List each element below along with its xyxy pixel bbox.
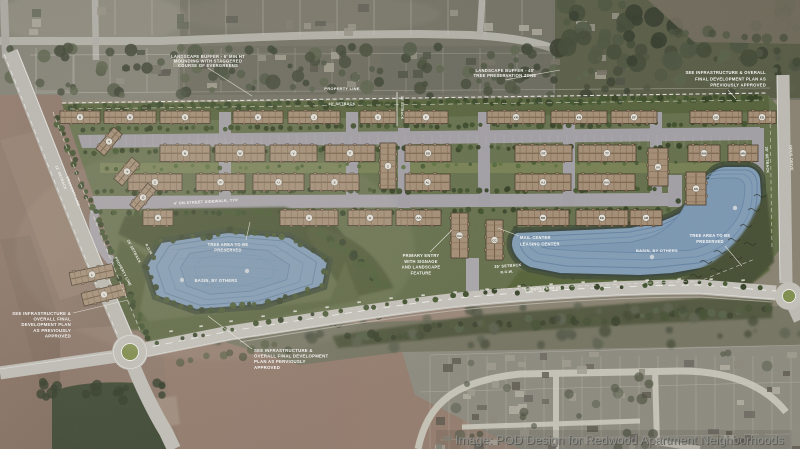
svg-text:Image: POD Design for Redwood: Image: POD Design for Redwood Apartment … <box>455 433 784 447</box>
